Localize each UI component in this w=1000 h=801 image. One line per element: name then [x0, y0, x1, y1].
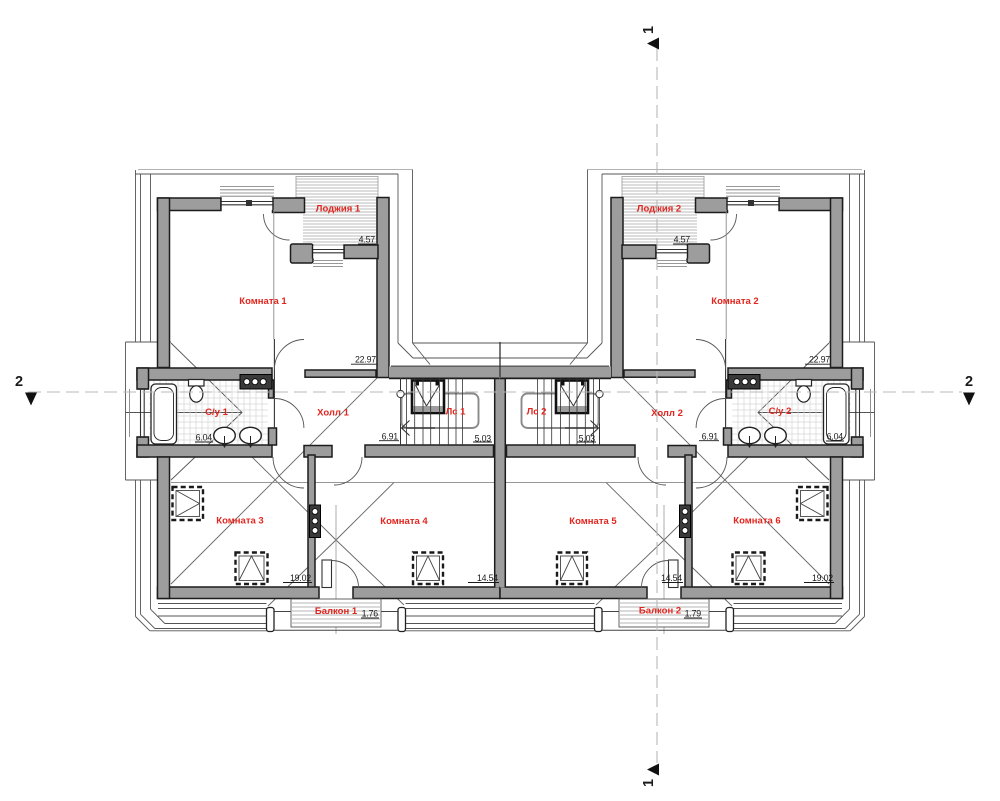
svg-text:Балкон 1: Балкон 1: [315, 606, 358, 617]
svg-text:6.91: 6.91: [382, 432, 399, 442]
svg-text:Лс 1: Лс 1: [446, 407, 467, 418]
svg-text:1: 1: [641, 779, 657, 787]
svg-text:С/у 1: С/у 1: [205, 407, 228, 418]
svg-text:Комната 6: Комната 6: [733, 516, 780, 527]
svg-text:1: 1: [641, 26, 657, 34]
svg-text:Комната 4: Комната 4: [380, 516, 428, 527]
svg-text:4.57: 4.57: [359, 235, 376, 245]
svg-text:С/у 2: С/у 2: [769, 406, 792, 417]
svg-text:1.76: 1.76: [362, 609, 379, 619]
svg-text:14.54: 14.54: [661, 573, 682, 583]
svg-text:19.02: 19.02: [290, 573, 311, 583]
svg-text:22.97: 22.97: [355, 355, 376, 365]
svg-text:Комната 3: Комната 3: [216, 516, 263, 527]
svg-text:2: 2: [15, 374, 23, 390]
svg-text:Лс 2: Лс 2: [527, 407, 547, 418]
svg-text:Лоджия 1: Лоджия 1: [316, 204, 361, 215]
svg-text:6.04: 6.04: [196, 433, 213, 443]
svg-text:Балкон 2: Балкон 2: [639, 606, 681, 617]
svg-text:22.97: 22.97: [809, 355, 830, 365]
svg-text:Комната 5: Комната 5: [569, 516, 617, 527]
svg-text:6.91: 6.91: [702, 432, 719, 442]
svg-text:2: 2: [965, 374, 973, 390]
svg-text:Холл 2: Холл 2: [651, 408, 683, 419]
svg-text:Холл 1: Холл 1: [317, 408, 349, 419]
svg-text:14.54: 14.54: [477, 573, 498, 583]
svg-text:4.57: 4.57: [674, 235, 691, 245]
svg-text:1.79: 1.79: [685, 609, 702, 619]
svg-text:Комната 2: Комната 2: [711, 296, 758, 307]
svg-text:Комната 1: Комната 1: [239, 296, 287, 307]
svg-text:19.02: 19.02: [812, 573, 833, 583]
svg-text:Лоджия 2: Лоджия 2: [637, 204, 681, 215]
svg-text:6.04: 6.04: [827, 432, 844, 442]
